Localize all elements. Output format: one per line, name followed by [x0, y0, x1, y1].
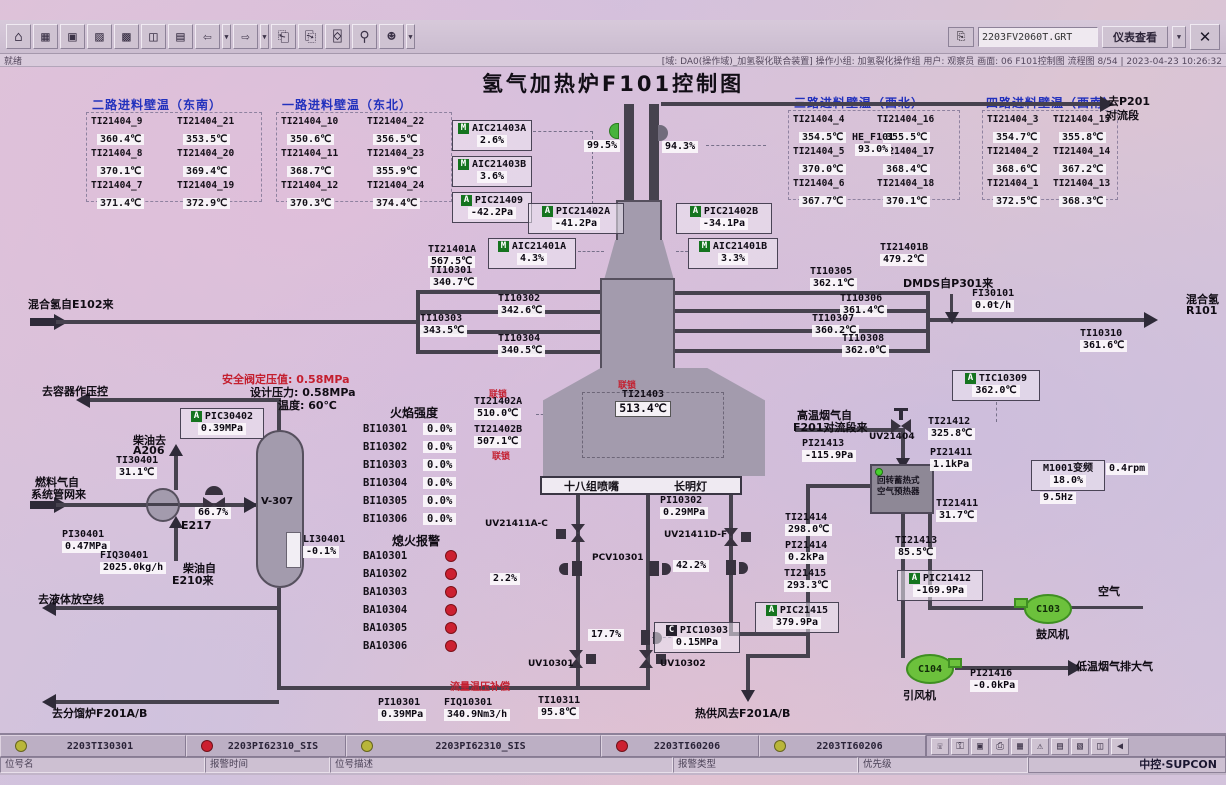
uv10302-valve[interactable] — [639, 650, 653, 668]
alarm-tag: 2203TI60206 — [794, 741, 925, 752]
screen-icon[interactable]: ▣ — [60, 24, 85, 49]
preheater-run-led — [875, 468, 883, 476]
alarm-indicator[interactable] — [445, 640, 457, 652]
tag-value[interactable]: 350.6℃ — [287, 134, 334, 145]
instrument-d94[interactable]: 94.3% — [662, 141, 698, 153]
v422-value[interactable]: 42.2% — [673, 560, 709, 572]
badge-a-icon: A — [965, 373, 976, 384]
fiq30401-value[interactable]: 2025.0kg/h — [100, 562, 166, 574]
report-icon[interactable]: ▤ — [168, 24, 193, 49]
ti10310-label: TI10310 — [1080, 328, 1127, 340]
tag-value[interactable]: 370.1℃ — [883, 196, 930, 207]
tag-value[interactable]: 0.0% — [423, 513, 456, 525]
pi21411-value[interactable]: 1.1kPa — [930, 459, 972, 471]
alarm-entry[interactable]: 2203TI60206 — [759, 735, 926, 757]
keypad-icon[interactable]: ▦ — [1011, 738, 1029, 755]
wall-temp-point: TI21404_19372.9℃ — [177, 180, 257, 210]
list-icon[interactable]: ▤ — [1051, 738, 1069, 755]
instrument-m1001_rpm[interactable]: 0.4rpm — [1106, 463, 1148, 475]
tag-name: BA10303 — [363, 586, 423, 598]
pi21414-value[interactable]: 0.2kPa — [785, 552, 827, 564]
badge-a-icon: A — [909, 573, 920, 584]
fan-c103-inlet — [1014, 598, 1028, 608]
prev-page-icon[interactable]: ⎗ — [271, 24, 296, 49]
instrument-d99[interactable]: 99.5% — [584, 140, 620, 152]
d94-value[interactable]: 94.3% — [662, 141, 698, 153]
matrix-icon[interactable]: ▩ — [114, 24, 139, 49]
ti10303-label: TI10303 — [420, 313, 467, 325]
tag-value[interactable]: 368.3℃ — [1059, 196, 1106, 207]
tag-name: BA10304 — [363, 604, 423, 616]
tag-value[interactable]: 354.7℃ — [993, 132, 1040, 143]
pilot-label: 长明灯 — [641, 478, 740, 494]
instrument-ti21413[interactable]: TI2141385.5℃ — [895, 535, 937, 559]
panel-title-1: 一路进料壁温（东北） — [282, 96, 412, 113]
li30401-label: LI30401 — [303, 534, 345, 546]
fiq10301-value[interactable]: 340.9Nm3/h — [444, 709, 510, 721]
ti21402b-label: TI21402B — [474, 424, 522, 436]
aic21401a-value[interactable]: 4.3% — [517, 253, 547, 265]
ti10304-value[interactable]: 340.5℃ — [498, 345, 545, 357]
instrument-pi21411[interactable]: PI214111.1kPa — [930, 447, 972, 471]
leader-line — [996, 402, 997, 422]
vessel-level-glass — [286, 532, 301, 568]
wall-panel-2: TI21404_9360.4℃TI21404_21353.5℃TI21404_8… — [86, 112, 262, 202]
instrument-ti10308[interactable]: TI10308362.0℃ — [842, 333, 889, 357]
alarm-tag: 2203TI30301 — [35, 741, 185, 752]
instrument-v422[interactable]: 42.2% — [673, 560, 709, 572]
damper-42-2-indicator — [739, 562, 748, 574]
ti21411-label: TI21411 — [936, 498, 978, 510]
tag-value[interactable]: 372.9℃ — [183, 198, 230, 209]
v667-value[interactable]: 66.7% — [195, 507, 231, 519]
pcv10301-valve[interactable] — [649, 561, 659, 576]
instrument-fiq30401[interactable]: FIQ304012025.0kg/h — [100, 550, 166, 574]
instrument-ti10310[interactable]: TI10310361.6℃ — [1080, 328, 1127, 352]
tag-value[interactable]: 368.7℃ — [287, 166, 334, 177]
search-icon[interactable]: ⚲ — [352, 24, 377, 49]
uv10302-label: UV10302 — [660, 659, 706, 669]
tag-value[interactable]: 371.4℃ — [97, 198, 144, 209]
alarm-entry[interactable]: 2203TI30301 — [0, 735, 186, 757]
pic21402a-label: APIC21402A — [534, 206, 618, 218]
instrument-ti10304[interactable]: TI10304340.5℃ — [498, 333, 545, 357]
status-bar: 就绪 [域: DA0(操作域)_加氢裂化联合装置] 操作小组: 加氢裂化操作组 … — [0, 54, 1226, 67]
pi21413-value[interactable]: -115.9Pa — [802, 450, 856, 462]
damper-valve-left[interactable] — [609, 123, 619, 139]
burner-riser — [646, 494, 650, 688]
pic21409-value[interactable]: -42.2Pa — [468, 207, 516, 219]
blower-label: 鼓风机 — [1036, 626, 1069, 642]
alarm-tag: 2203TI60206 — [636, 741, 758, 752]
valve-17-7[interactable] — [641, 630, 650, 645]
fan-c103[interactable]: C103 — [1024, 594, 1072, 624]
instrument-ti21403[interactable]: TI21403513.4℃ — [606, 389, 680, 417]
tag-name: TI21404_8 — [91, 148, 171, 159]
instrument-aic21403b[interactable]: MAIC21403B3.6% — [452, 156, 532, 187]
instrument-pic21402a[interactable]: APIC21402A-41.2Pa — [528, 203, 624, 234]
dmds-pipe — [950, 294, 953, 314]
tag-name: BA10301 — [363, 550, 423, 562]
instrument-m1001_hz[interactable]: 9.5Hz — [1040, 492, 1076, 504]
instrument-ti21401b[interactable]: TI21401B479.2℃ — [880, 242, 928, 266]
pic21402b-value[interactable]: -34.1Pa — [700, 218, 748, 230]
tag-value[interactable]: 374.4℃ — [373, 198, 420, 209]
tag-value[interactable]: 370.3℃ — [287, 198, 334, 209]
tag-value[interactable]: 353.5℃ — [183, 134, 230, 145]
aic21403b-value[interactable]: 3.6% — [477, 171, 507, 183]
fan-c103-label: C103 — [1036, 604, 1060, 615]
back-icon[interactable]: ⇦ — [195, 24, 220, 49]
flame-intensity-row: BI103050.0% — [363, 492, 456, 510]
wall-temp-point: TI21404_13368.3℃ — [1053, 178, 1113, 208]
v22-value[interactable]: 2.2% — [490, 573, 520, 585]
alarm-indicator[interactable] — [445, 586, 457, 598]
alarm-bar: 2203TI303012203PI62310_SIS2203PI62310_SI… — [0, 733, 1226, 775]
instrument-he_f101[interactable]: HE_F10193.0% — [852, 132, 894, 156]
ti10302-value[interactable]: 342.6℃ — [498, 305, 545, 317]
instrument-tic10309[interactable]: ATIC10309362.0℃ — [952, 370, 1040, 401]
instrument-aic21403a[interactable]: MAIC21403A2.6% — [452, 120, 532, 151]
damper-valve-right[interactable] — [658, 125, 668, 141]
trend-icon[interactable]: ▨ — [87, 24, 112, 49]
instrument-v667[interactable]: 66.7% — [195, 507, 231, 519]
tag-value[interactable]: 367.2℃ — [1059, 164, 1106, 175]
tag-name: BA10306 — [363, 640, 423, 652]
fan-c104[interactable]: C104 — [906, 654, 954, 684]
user-icon-dropdown[interactable]: ▼ — [406, 24, 415, 49]
instrument-aic21401a[interactable]: MAIC21401A4.3% — [488, 238, 576, 269]
lock-icon[interactable]: ⚿ — [951, 738, 969, 755]
instrument-fiq10301[interactable]: FIQ10301340.9Nm3/h — [444, 697, 510, 721]
faceplate-icon[interactable]: ◫ — [141, 24, 166, 49]
flame-intensity-row: BI103040.0% — [363, 474, 456, 492]
alarm-tag: 2203PI62310_SIS — [221, 741, 345, 752]
positioner-2-2-indicator — [559, 563, 568, 575]
uv10301-label: UV10301 — [528, 659, 574, 669]
pic10303-value[interactable]: 0.15MPa — [673, 637, 721, 649]
li30401-value[interactable]: -0.1% — [303, 546, 339, 558]
ti10303-value[interactable]: 343.5℃ — [420, 325, 467, 337]
instrument-ti10305[interactable]: TI10305362.1℃ — [810, 266, 857, 290]
overview-icon[interactable]: ▦ — [33, 24, 58, 49]
instrument-pi21413[interactable]: PI21413-115.9Pa — [802, 438, 856, 462]
ti10310-value[interactable]: 361.6℃ — [1080, 340, 1127, 352]
aic21403b-label: MAIC21403B — [458, 159, 526, 171]
close-button[interactable]: ✕ — [1190, 24, 1220, 50]
flow-compensation-label: 流量温压补偿 — [450, 678, 510, 693]
wall-temp-point: TI21404_11368.7℃ — [281, 148, 361, 178]
tag-value[interactable]: 367.7℃ — [799, 196, 846, 207]
instrument-fi30101[interactable]: FI301010.0t/h — [972, 288, 1014, 312]
home-icon[interactable]: ⌂ — [6, 24, 31, 49]
id-fan-label: 引风机 — [903, 687, 936, 703]
tag-name: BI10303 — [363, 459, 423, 471]
ti21413-value[interactable]: 85.5℃ — [895, 547, 936, 559]
tag-value[interactable]: 355.9℃ — [373, 166, 420, 177]
instrument-ti21411[interactable]: TI2141131.7℃ — [936, 498, 978, 522]
mix-h2-from-label: 混合氢自E102来 — [28, 296, 113, 312]
instrument-ti21412[interactable]: TI21412325.8℃ — [928, 416, 975, 440]
badge-a-icon: A — [191, 411, 202, 422]
document-icon[interactable]: ▧ — [1071, 738, 1089, 755]
instrument-ti30401[interactable]: TI3040131.1℃ — [116, 455, 158, 479]
alarm-entry[interactable]: 2203PI62310_SIS — [186, 735, 346, 757]
supcon-brand: 中控·SUPCON — [1028, 757, 1226, 773]
tag-name: TI21404_16 — [877, 114, 955, 125]
pi21411-label: PI21411 — [930, 447, 972, 459]
tag-value[interactable]: 370.0℃ — [799, 164, 846, 175]
forward-icon[interactable]: ⇨ — [233, 24, 258, 49]
alarm-indicator[interactable] — [445, 550, 457, 562]
alarm-entry[interactable]: 2203PI62310_SIS — [346, 735, 601, 757]
ti21413-label: TI21413 — [895, 535, 937, 547]
tag-value[interactable]: 372.5℃ — [993, 196, 1040, 207]
ti10305-value[interactable]: 362.1℃ — [810, 278, 857, 290]
feed-arrow-stub — [30, 318, 56, 326]
instrument-pic21409[interactable]: APIC21409-42.2Pa — [452, 192, 532, 223]
flow-arrow — [741, 690, 755, 702]
pi10301-value[interactable]: 0.39MPa — [378, 709, 426, 721]
badge-m-icon: M — [699, 241, 710, 252]
instrument-ti10311[interactable]: TI1031195.8℃ — [538, 695, 580, 719]
tag-value[interactable]: 355.8℃ — [1059, 132, 1106, 143]
v177-value[interactable]: 17.7% — [588, 629, 624, 641]
tag-value[interactable]: 0.0% — [423, 459, 456, 471]
pic21402b-label: APIC21402B — [682, 206, 766, 218]
tag-value[interactable]: 356.5℃ — [373, 134, 420, 145]
flameout-alarm-row: BA10304 — [363, 601, 457, 619]
alarm-entry[interactable]: 2203TI60206 — [601, 735, 759, 757]
tag-name: TI21404_11 — [281, 148, 361, 159]
instrument-pic21412[interactable]: APIC21412-169.9Pa — [897, 570, 983, 601]
instrument-pi21416[interactable]: PI21416-0.0kPa — [970, 668, 1018, 692]
pic21412-value[interactable]: -169.9Pa — [913, 585, 967, 597]
r101-label: R101 — [1186, 304, 1217, 317]
instrument-view-button[interactable]: 仪表查看 — [1102, 26, 1168, 48]
alarm-indicator[interactable] — [445, 604, 457, 616]
m1001-label: M1001变频 — [1037, 463, 1099, 475]
monitor-icon[interactable]: ▣ — [971, 738, 989, 755]
instrument-pic21402b[interactable]: APIC21402B-34.1Pa — [676, 203, 772, 234]
stack-flare — [604, 240, 674, 280]
m1001_rpm-value[interactable]: 0.4rpm — [1106, 463, 1148, 475]
diesel-from-label2: E210来 — [172, 572, 213, 588]
pcv10301-label: PCV10301 — [592, 553, 643, 563]
uv10301-solenoid — [586, 654, 596, 664]
aic21403a-label: MAIC21403A — [458, 123, 526, 135]
d99-value[interactable]: 99.5% — [584, 140, 620, 152]
alarm-tag: 2203PI62310_SIS — [381, 741, 600, 752]
tic10309-value[interactable]: 362.0℃ — [972, 385, 1019, 397]
tag-name: BA10305 — [363, 622, 423, 634]
instrument-pi21414[interactable]: PI214140.2kPa — [785, 540, 827, 564]
book-icon[interactable]: ⌺ — [325, 24, 350, 49]
forward-icon-dropdown[interactable]: ▼ — [260, 24, 269, 49]
wall-temp-point: TI21404_7371.4℃ — [91, 180, 171, 210]
instrument-li30401[interactable]: LI30401-0.1% — [303, 534, 345, 558]
dcs-screen: ⌂▦▣▨▩◫▤⇦▼⇨▼⎗⎘⌺⚲☻▼ ⎘ 仪表查看 ▼ ✕ 就绪 [域: DA0(… — [0, 0, 1226, 785]
instrument-ti10303[interactable]: TI10303343.5℃ — [420, 313, 467, 337]
printer-icon[interactable]: ⎙ — [991, 738, 1009, 755]
tag-value[interactable]: 0.0% — [423, 423, 456, 435]
hot-air-duct — [748, 654, 810, 658]
tag-name: BI10305 — [363, 495, 423, 507]
outlet-pipe — [930, 318, 1146, 322]
tag-value[interactable]: 370.1℃ — [97, 166, 144, 177]
toolbar: ⌂▦▣▨▩◫▤⇦▼⇨▼⎗⎘⌺⚲☻▼ ⎘ 仪表查看 ▼ ✕ — [0, 20, 1226, 54]
flame-intensity-row: BI103010.0% — [363, 420, 456, 438]
flameout-alarm-row: BA10301 — [363, 547, 457, 565]
pic30402-value[interactable]: 0.39MPa — [198, 423, 246, 435]
valve-actuator-dome — [205, 486, 223, 495]
interlock-label: 联锁 — [492, 449, 510, 462]
horn-icon[interactable]: ◀ — [1111, 738, 1129, 755]
instrument-m1001[interactable]: M1001变频18.0% — [1031, 460, 1105, 491]
instrument-pic30402[interactable]: APIC304020.39MPa — [180, 408, 264, 439]
uv21411df-solenoid — [741, 532, 751, 542]
ti10308-value[interactable]: 362.0℃ — [842, 345, 889, 357]
instrument-ti10301[interactable]: TI10301340.7℃ — [430, 265, 477, 289]
uv21404-label: UV21404 — [869, 432, 915, 442]
phone-icon[interactable]: ☏ — [931, 738, 949, 755]
tag-name: TI21404_1 — [987, 178, 1047, 189]
ti10311-value[interactable]: 95.8℃ — [538, 707, 579, 719]
ti21401b-value[interactable]: 479.2℃ — [880, 254, 927, 266]
tic10309-label: ATIC10309 — [958, 373, 1034, 385]
tag-value[interactable]: 360.4℃ — [97, 134, 144, 145]
m1001_hz-value[interactable]: 9.5Hz — [1040, 492, 1076, 504]
tag-name: TI21404_4 — [793, 114, 871, 125]
tag-name: BI10302 — [363, 441, 423, 453]
tag-value[interactable]: 368.6℃ — [993, 164, 1040, 175]
ti21414-value[interactable]: 298.0℃ — [785, 524, 832, 536]
pi10302-value[interactable]: 0.29MPa — [660, 507, 708, 519]
ti21411-value[interactable]: 31.7℃ — [936, 510, 977, 522]
pic21409-label: APIC21409 — [458, 195, 526, 207]
uv21411ac-solenoid — [556, 529, 566, 539]
ti10308-label: TI10308 — [842, 333, 889, 345]
tag-value[interactable]: 0.0% — [423, 441, 456, 453]
alarm-indicator[interactable] — [445, 568, 457, 580]
tag-name: TI21404_23 — [367, 148, 447, 159]
tag-name: TI21404_15 — [1053, 114, 1113, 125]
ti21403-value[interactable]: 513.4℃ — [615, 401, 671, 417]
coil-pipe — [675, 309, 928, 313]
back-icon-dropdown[interactable]: ▼ — [222, 24, 231, 49]
preheater-label-2: 空气预热器 — [877, 487, 929, 498]
alarm-field-label: 位号描述 — [330, 757, 673, 773]
instrument-ti21402b[interactable]: TI21402B507.1℃ — [474, 424, 522, 448]
instrument-pi10301[interactable]: PI103010.39MPa — [378, 697, 426, 721]
instrument-aic21401b[interactable]: MAIC21401B3.3% — [688, 238, 778, 269]
instrument-ti21414[interactable]: TI21414298.0℃ — [785, 512, 832, 536]
aic21403a-value[interactable]: 2.6% — [477, 135, 507, 147]
to-vessel-label: 去容器作压控 — [42, 383, 108, 399]
fiq30401-label: FIQ30401 — [100, 550, 166, 562]
session-info: [域: DA0(操作域)_加氢裂化联合装置] 操作小组: 加氢裂化操作组 用户:… — [662, 54, 1222, 67]
instrument-v177[interactable]: 17.7% — [588, 629, 624, 641]
alarm-field-label: 报警时间 — [205, 757, 330, 773]
flameout-alarm-row: BA10303 — [363, 583, 457, 601]
hot-air-duct — [746, 654, 750, 692]
he_f101-value[interactable]: 93.0% — [855, 144, 891, 156]
cold-flue-label: 低温烟气排大气 — [1076, 658, 1153, 674]
badge-a-icon: A — [766, 605, 777, 616]
ti21412-label: TI21412 — [928, 416, 975, 428]
leader-line — [578, 251, 604, 252]
next-page-icon[interactable]: ⎘ — [298, 24, 323, 49]
ti10304-label: TI10304 — [498, 333, 545, 345]
pic21402a-value[interactable]: -41.2Pa — [552, 218, 600, 230]
badge-m-icon: M — [458, 159, 469, 170]
user-icon[interactable]: ☻ — [379, 24, 404, 49]
wall-temp-point: TI21404_6367.7℃ — [793, 178, 871, 208]
screen-file-input[interactable] — [978, 27, 1098, 47]
instrument-pic21415[interactable]: APIC21415379.9Pa — [755, 602, 839, 633]
wall-temp-point: TI21404_15355.8℃ — [1053, 114, 1113, 144]
ti21415-value[interactable]: 293.3℃ — [784, 580, 831, 592]
tag-name: TI21404_13 — [1053, 178, 1113, 189]
ti21412-value[interactable]: 325.8℃ — [928, 428, 975, 440]
ti21402a-value[interactable]: 510.0℃ — [474, 408, 521, 420]
ti10302-label: TI10302 — [498, 293, 545, 305]
ti10306-label: TI10306 — [840, 293, 887, 305]
damper-42-2[interactable] — [726, 560, 736, 575]
instrument-ti10302[interactable]: TI10302342.6℃ — [498, 293, 545, 317]
screen-select-icon[interactable]: ⎘ — [948, 27, 974, 47]
burner-riser — [576, 494, 580, 688]
positioner-2-2[interactable] — [572, 561, 582, 576]
tag-value[interactable]: 368.4℃ — [883, 164, 930, 175]
tag-value[interactable]: 0.0% — [423, 477, 456, 489]
instrument-ti21415[interactable]: TI21415293.3℃ — [784, 568, 831, 592]
instrument-pic10303[interactable]: CPIC103030.15MPa — [654, 622, 740, 653]
layout-icon[interactable]: ◫ — [1091, 738, 1109, 755]
pi10302-label: PI10302 — [660, 495, 708, 507]
view-dropdown-arrow[interactable]: ▼ — [1172, 26, 1186, 48]
aic21401b-value[interactable]: 3.3% — [718, 253, 748, 265]
uv21411ac-valve[interactable] — [571, 524, 585, 542]
tag-value[interactable]: 0.0% — [423, 495, 456, 507]
wall-panel-4: TI21404_3354.7℃TI21404_15355.8℃TI21404_2… — [982, 110, 1118, 200]
tag-name: TI21404_19 — [177, 180, 257, 191]
coil-pipe — [675, 291, 928, 295]
wall-temp-point: TI21404_22356.5℃ — [367, 116, 447, 146]
hot-flue-label2: F201对流段来 — [793, 419, 867, 435]
pi21416-value[interactable]: -0.0kPa — [970, 680, 1018, 692]
instrument-pi10302[interactable]: PI103020.29MPa — [660, 495, 708, 519]
alarm-bell-icon[interactable]: ⚠ — [1031, 738, 1049, 755]
instrument-v22[interactable]: 2.2% — [490, 573, 520, 585]
alarm-indicator[interactable] — [445, 622, 457, 634]
v307-label: V-307 — [261, 496, 293, 507]
wall-temp-point: TI21404_24374.4℃ — [367, 180, 447, 210]
ti10301-value[interactable]: 340.7℃ — [430, 277, 477, 289]
m1001-value[interactable]: 18.0% — [1050, 475, 1086, 487]
tag-value[interactable]: 369.4℃ — [183, 166, 230, 177]
ti30401-value[interactable]: 31.1℃ — [116, 467, 157, 479]
dmds-from-label: DMDS自P301来 — [903, 275, 993, 291]
tag-value[interactable]: 354.5℃ — [799, 132, 846, 143]
uv21411ac-label: UV21411A-C — [485, 519, 548, 529]
ti21402b-value[interactable]: 507.1℃ — [474, 436, 521, 448]
tag-name: TI21404_7 — [91, 180, 171, 191]
ti21401b-label: TI21401B — [880, 242, 928, 254]
badge-a-icon: A — [461, 195, 472, 206]
fi30101-value[interactable]: 0.0t/h — [972, 300, 1014, 312]
pic21415-value[interactable]: 379.9Pa — [773, 617, 821, 629]
